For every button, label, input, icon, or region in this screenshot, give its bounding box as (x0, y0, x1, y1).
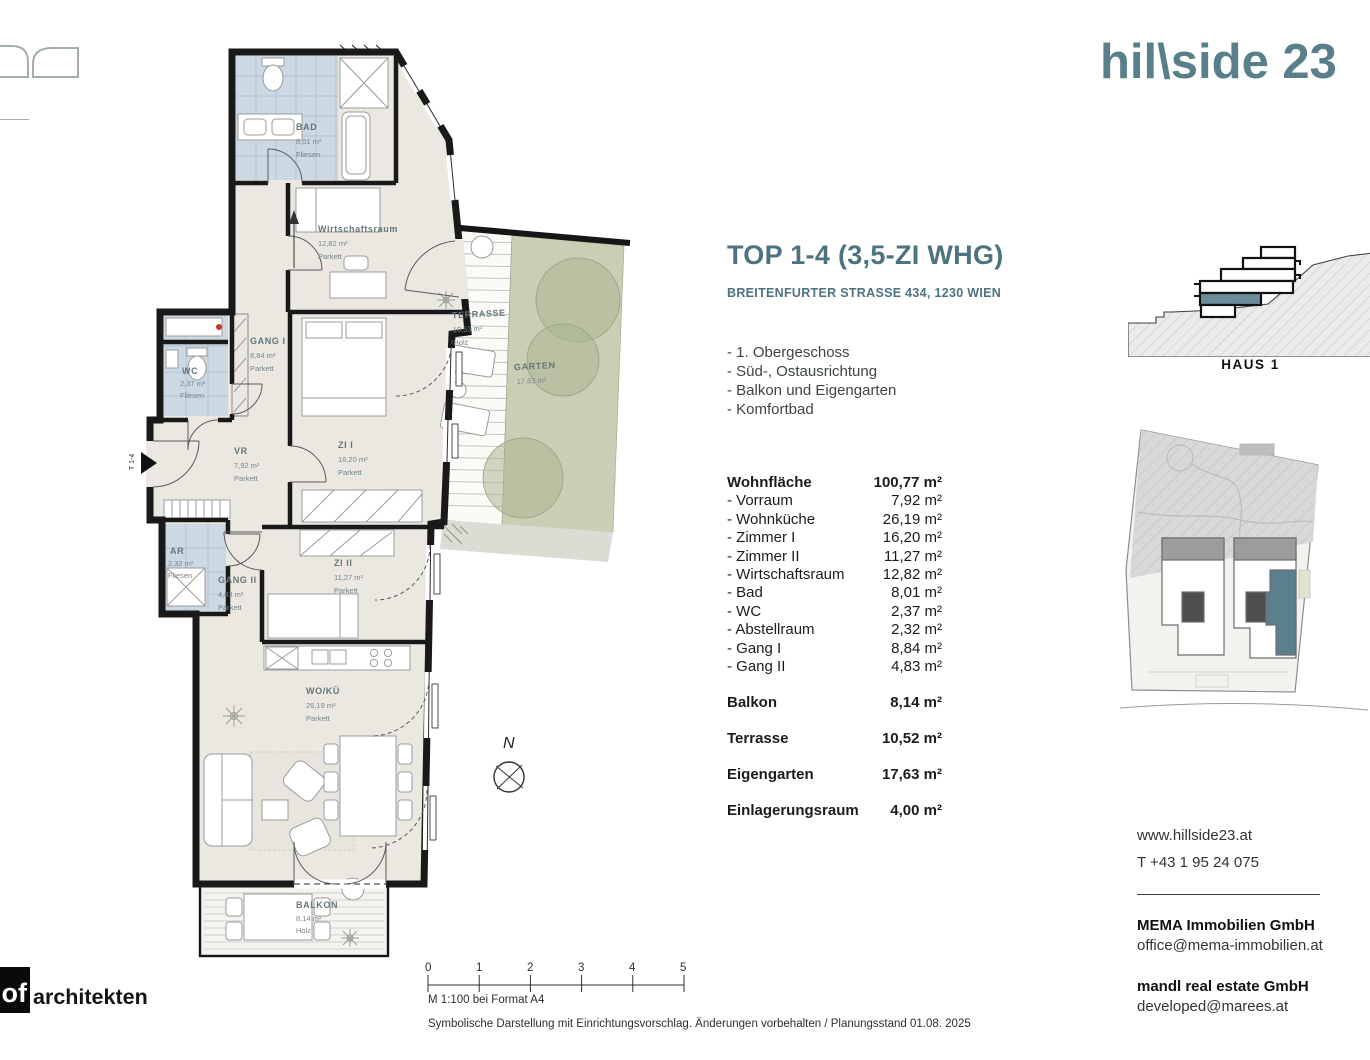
svg-text:2,32 m²: 2,32 m² (168, 559, 194, 568)
table-row-eigengarten: Eigengarten17,63 m² (727, 766, 942, 784)
contact-block: www.hillside23.at T +43 1 95 24 075 MEMA… (1137, 826, 1323, 1017)
table-row: - Gang I8,84 m² (727, 640, 942, 658)
scale-note: M 1:100 bei Format A4 (428, 994, 544, 1006)
feature-list: - 1. Obergeschoss - Süd-, Ostausrichtung… (727, 343, 896, 419)
svg-text:WC: WC (182, 366, 198, 376)
svg-text:Parkett: Parkett (318, 252, 343, 261)
haus-label: HAUS 1 (1128, 357, 1370, 372)
svg-text:ZI II: ZI II (334, 558, 353, 568)
svg-text:7,92 m²: 7,92 m² (234, 461, 260, 470)
row-value: 100,77 m² (874, 474, 942, 492)
svg-text:11,27 m²: 11,27 m² (334, 573, 364, 582)
table-row: - Abstellraum2,32 m² (727, 621, 942, 639)
company-email[interactable]: office@mema-immobilien.at (1137, 936, 1323, 956)
company-name: mandl real estate GmbH (1137, 977, 1323, 997)
svg-text:0: 0 (425, 962, 431, 974)
feature-item: - 1. Obergeschoss (727, 343, 896, 362)
svg-text:4: 4 (629, 962, 636, 974)
company-block: MEMA Immobilien GmbH office@mema-immobil… (1137, 916, 1323, 956)
svg-text:T 1-4: T 1-4 (129, 454, 136, 470)
site-plan (1118, 420, 1370, 720)
svg-text:12,82 m²: 12,82 m² (318, 239, 348, 248)
svg-text:BALKON: BALKON (296, 900, 338, 910)
svg-text:Parkett: Parkett (306, 714, 331, 723)
svg-text:Parkett: Parkett (338, 468, 363, 477)
disclaimer-text: Symbolische Darstellung mit Einrichtungs… (428, 1018, 971, 1030)
architect-logo-box: of (0, 967, 30, 1013)
floor-plan: BAD 8,01 m² Fliesen Wirtschaftsraum 12,8… (0, 0, 700, 1060)
svg-text:WO/KÜ: WO/KÜ (306, 686, 340, 696)
table-row: - Wohnküche26,19 m² (727, 511, 942, 529)
svg-text:1: 1 (476, 962, 482, 974)
svg-text:Holz: Holz (453, 338, 469, 348)
svg-text:Parkett: Parkett (334, 586, 359, 595)
table-row: - Gang II4,83 m² (727, 658, 942, 676)
svg-text:3: 3 (578, 962, 584, 974)
table-row: - Bad8,01 m² (727, 584, 942, 602)
compass: N (494, 735, 524, 792)
building-elevation (1128, 232, 1370, 357)
svg-text:Parkett: Parkett (250, 364, 275, 373)
table-row: - WC2,37 m² (727, 603, 942, 621)
table-row-total: Wohnfläche 100,77 m² (727, 474, 942, 492)
table-row: - Vorraum7,92 m² (727, 492, 942, 510)
phone-number: T +43 1 95 24 075 (1137, 853, 1323, 873)
svg-text:10,53 m²: 10,53 m² (452, 324, 483, 335)
website-link[interactable]: www.hillside23.at (1137, 826, 1323, 846)
svg-text:26,19 m²: 26,19 m² (306, 701, 336, 710)
svg-text:N: N (503, 735, 515, 752)
architect-name: architekten (33, 985, 148, 1010)
company-email[interactable]: developed@marees.at (1137, 997, 1323, 1017)
svg-text:Wirtschaftsraum: Wirtschaftsraum (318, 224, 398, 234)
svg-text:Fliesen: Fliesen (180, 391, 204, 400)
table-row: - Wirtschaftsraum12,82 m² (727, 566, 942, 584)
svg-text:AR: AR (170, 546, 184, 556)
svg-text:Holz: Holz (296, 926, 311, 935)
svg-text:5: 5 (680, 962, 686, 974)
contact-divider (1137, 894, 1320, 895)
table-row-terrasse: Terrasse10,52 m² (727, 730, 942, 748)
svg-text:GANG II: GANG II (218, 575, 257, 585)
svg-text:8,84 m²: 8,84 m² (250, 351, 276, 360)
svg-text:BAD: BAD (296, 122, 317, 132)
svg-text:8,14 m²: 8,14 m² (296, 914, 322, 923)
company-block: mandl real estate GmbH developed@marees.… (1137, 977, 1323, 1017)
feature-item: - Komfortbad (727, 400, 896, 419)
svg-text:Parkett: Parkett (218, 603, 243, 612)
svg-text:2,37 m²: 2,37 m² (180, 379, 206, 388)
svg-text:4,83 m²: 4,83 m² (218, 590, 244, 599)
table-row-balkon: Balkon8,14 m² (727, 694, 942, 712)
svg-text:Parkett: Parkett (234, 474, 259, 483)
row-label: Wohnfläche (727, 474, 812, 492)
feature-item: - Süd-, Ostausrichtung (727, 362, 896, 381)
table-row-einlagerungsraum: Einlagerungsraum4,00 m² (727, 802, 942, 820)
svg-text:Fliesen: Fliesen (296, 150, 320, 159)
area-table: Wohnfläche 100,77 m² - Vorraum7,92 m² - … (727, 474, 942, 820)
svg-text:GANG I: GANG I (250, 336, 286, 346)
svg-text:VR: VR (234, 446, 248, 456)
table-row: - Zimmer I16,20 m² (727, 529, 942, 547)
svg-text:ZI I: ZI I (338, 440, 353, 450)
feature-item: - Balkon und Eigengarten (727, 381, 896, 400)
company-name: MEMA Immobilien GmbH (1137, 916, 1323, 936)
svg-text:Fliesen: Fliesen (168, 571, 192, 580)
page-title: TOP 1-4 (3,5-ZI WHG) (727, 240, 1004, 271)
table-row: - Zimmer II11,27 m² (727, 548, 942, 566)
hillside-logo: hil\side 23 (1100, 34, 1337, 90)
svg-text:2: 2 (527, 962, 533, 974)
svg-text:8,01 m²: 8,01 m² (296, 137, 322, 146)
svg-text:17,63 m²: 17,63 m² (516, 376, 547, 387)
svg-text:16,20 m²: 16,20 m² (338, 455, 368, 464)
address-subtitle: BREITENFURTER STRASSE 434, 1230 WIEN (727, 286, 1001, 300)
